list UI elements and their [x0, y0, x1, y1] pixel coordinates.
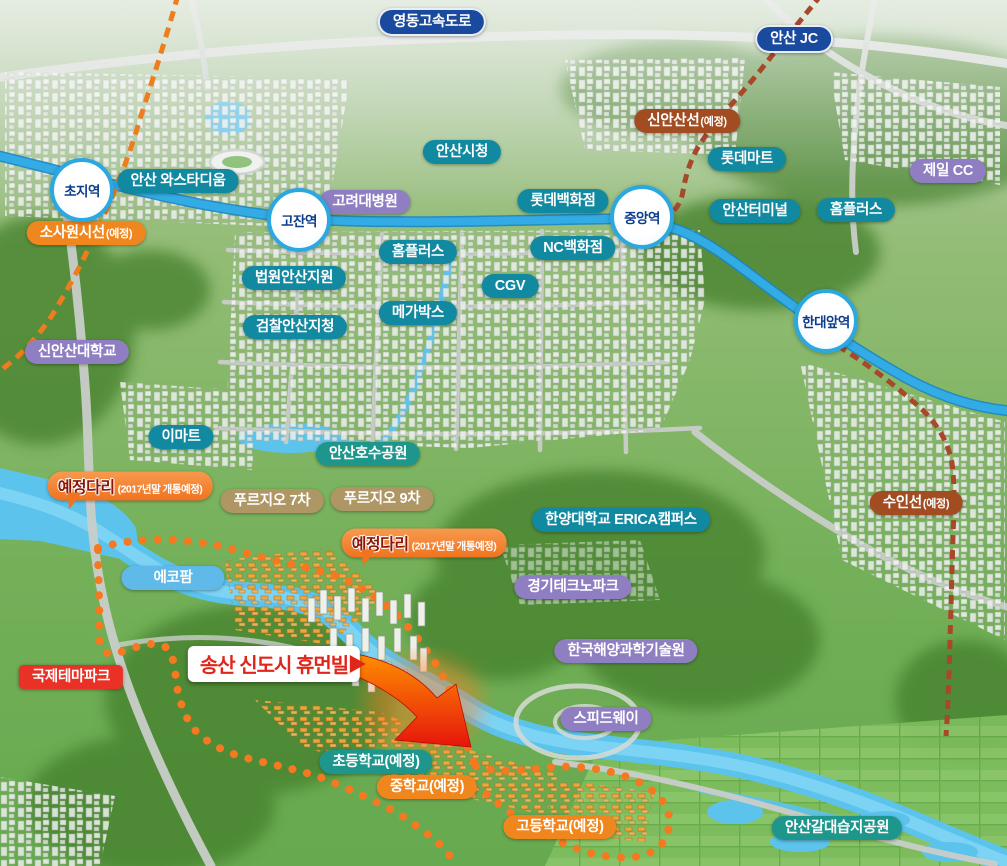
label-text: 홈플러스	[392, 244, 444, 260]
label-text: NC백화점	[543, 240, 602, 256]
homeplus-east-label: 홈플러스	[817, 198, 895, 222]
label-text: 수인선	[883, 495, 922, 511]
kiost-label: 한국해양과학기술원	[554, 639, 697, 663]
label-text: 안산갈대습지공원	[785, 820, 889, 836]
hanyang-univ-erica-label: 한양대학교 ERICA캠퍼스	[532, 508, 710, 532]
label-text: 스피드웨이	[573, 711, 638, 727]
label-text: 홈플러스	[830, 202, 882, 218]
jeil-cc-label: 제일 CC	[910, 159, 986, 183]
sosa-wonsi-line-label: 소사원시선(예정)	[27, 221, 146, 245]
court-ansan-branch-label: 법원안산지원	[242, 266, 346, 290]
prugio-9-label: 푸르지오 9차	[331, 487, 434, 511]
label-text: 신안산선	[647, 113, 699, 129]
bridge-label-suffix: (2017년말 개통예정)	[118, 484, 203, 496]
handaeap-station: 한대앞역	[794, 289, 858, 353]
label-text: CGV	[495, 278, 526, 294]
ansan-lake-park-label: 안산호수공원	[316, 442, 420, 466]
label-text: 검찰안산지청	[256, 319, 334, 335]
planned-bridge-west-bubble: 예정다리(2017년말 개통예정)	[48, 472, 213, 501]
homeplus-center-label: 홈플러스	[379, 240, 457, 264]
nc-department-store-label: NC백화점	[530, 236, 615, 260]
suin-line-label: 수인선(예정)	[870, 491, 963, 515]
bridge-label-suffix: (2017년말 개통예정)	[412, 541, 497, 553]
label-text: 제일 CC	[923, 163, 973, 179]
label-text: 안산 JC	[770, 31, 818, 47]
label-text: 메가박스	[392, 305, 444, 321]
choji-station: 초지역	[50, 158, 114, 222]
megabox-label: 메가박스	[379, 301, 457, 325]
speedway-label: 스피드웨이	[560, 707, 651, 731]
ansan-terminal-label: 안산터미널	[709, 199, 800, 223]
bridge-label-text: 예정다리	[58, 480, 115, 497]
label-text: 중학교(예정)	[390, 779, 464, 795]
ansan-city-hall-label: 안산시청	[423, 140, 501, 164]
eco-farm-label: 에코팜	[121, 566, 224, 590]
label-text: 롯데백화점	[530, 193, 595, 209]
yeongdong-expressway-label: 영동고속도로	[378, 8, 486, 36]
label-text: 고등학교(예정)	[516, 819, 603, 835]
label-text: 한국해양과학기술원	[567, 643, 684, 659]
planned-bridge-center-bubble: 예정다리(2017년말 개통예정)	[342, 529, 507, 558]
label-text: 신안산대학교	[38, 344, 116, 360]
emart-label: 이마트	[148, 425, 213, 449]
middle-school-label: 중학교(예정)	[377, 775, 477, 799]
label-text: 국제테마파크	[32, 669, 110, 685]
gyeonggi-technopark-label: 경기테크노파크	[514, 575, 631, 599]
label-text: 소사원시선	[40, 225, 105, 241]
cgv-label: CGV	[482, 274, 539, 298]
label-text: 푸르지오 9차	[344, 491, 421, 507]
label-suffix: (예정)	[700, 116, 726, 128]
gojan-station: 고잔역	[267, 188, 331, 252]
ansan-reed-wetland-park-label: 안산갈대습지공원	[772, 816, 902, 840]
ansan-wa-stadium-label: 안산 와스타디움	[117, 169, 238, 193]
bridge-label-text: 예정다리	[352, 537, 409, 554]
birds-eye-development-map: 영동고속도로안산 JC신안산선(예정)롯데마트제일 CC안산 와스타디움안산시청…	[0, 0, 1007, 866]
label-text: 이마트	[161, 429, 200, 445]
label-text: 한양대학교 ERICA캠퍼스	[545, 512, 697, 528]
jungang-station: 중앙역	[610, 185, 674, 249]
label-text: 안산 와스타디움	[130, 173, 225, 189]
prugio-7-label: 푸르지오 7차	[221, 489, 324, 513]
label-text: 영동고속도로	[393, 14, 471, 30]
international-theme-park-label: 국제테마파크	[19, 665, 123, 689]
high-school-label: 고등학교(예정)	[503, 815, 616, 839]
ansan-jc-label: 안산 JC	[755, 25, 833, 53]
label-text: 고려대병원	[332, 194, 397, 210]
lotte-mart-label: 롯데마트	[708, 147, 786, 171]
label-text: 안산터미널	[722, 203, 787, 219]
development-title: 송산 신도시 휴먼빌	[188, 646, 360, 682]
sin-ansan-line-label: 신안산선(예정)	[634, 109, 740, 133]
label-text: 에코팜	[153, 570, 192, 586]
label-suffix: (예정)	[923, 498, 949, 510]
label-text: 롯데마트	[721, 151, 773, 167]
label-text: 초등학교(예정)	[332, 754, 419, 770]
label-text: 법원안산지원	[255, 270, 333, 286]
label-text: 경기테크노파크	[527, 579, 618, 595]
label-suffix: (예정)	[106, 228, 132, 240]
elementary-school-label: 초등학교(예정)	[319, 750, 432, 774]
korea-univ-hospital-label: 고려대병원	[319, 190, 410, 214]
label-text: 안산호수공원	[329, 446, 407, 462]
sin-ansan-university-label: 신안산대학교	[25, 340, 129, 364]
label-text: 푸르지오 7차	[234, 493, 311, 509]
lotte-department-store-label: 롯데백화점	[517, 189, 608, 213]
prosecutors-ansan-branch-label: 검찰안산지청	[243, 315, 347, 339]
label-text: 안산시청	[436, 144, 488, 160]
